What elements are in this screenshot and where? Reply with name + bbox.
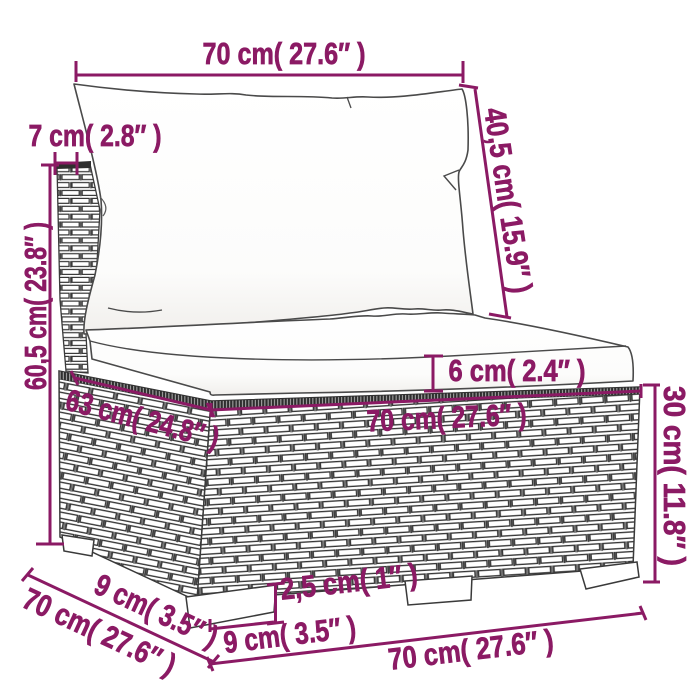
- svg-text:60,5 cm( 23.8″ ): 60,5 cm( 23.8″ ): [19, 222, 53, 390]
- svg-text:6 cm( 2.4″ ): 6 cm( 2.4″ ): [449, 354, 586, 388]
- svg-text:30 cm( 11.8″ ): 30 cm( 11.8″ ): [657, 386, 691, 566]
- svg-text:70 cm( 27.6″ ): 70 cm( 27.6″ ): [203, 37, 366, 71]
- svg-text:7 cm( 2.8″ ): 7 cm( 2.8″ ): [29, 119, 162, 153]
- svg-text:70 cm( 27.6″ ): 70 cm( 27.6″ ): [366, 398, 527, 439]
